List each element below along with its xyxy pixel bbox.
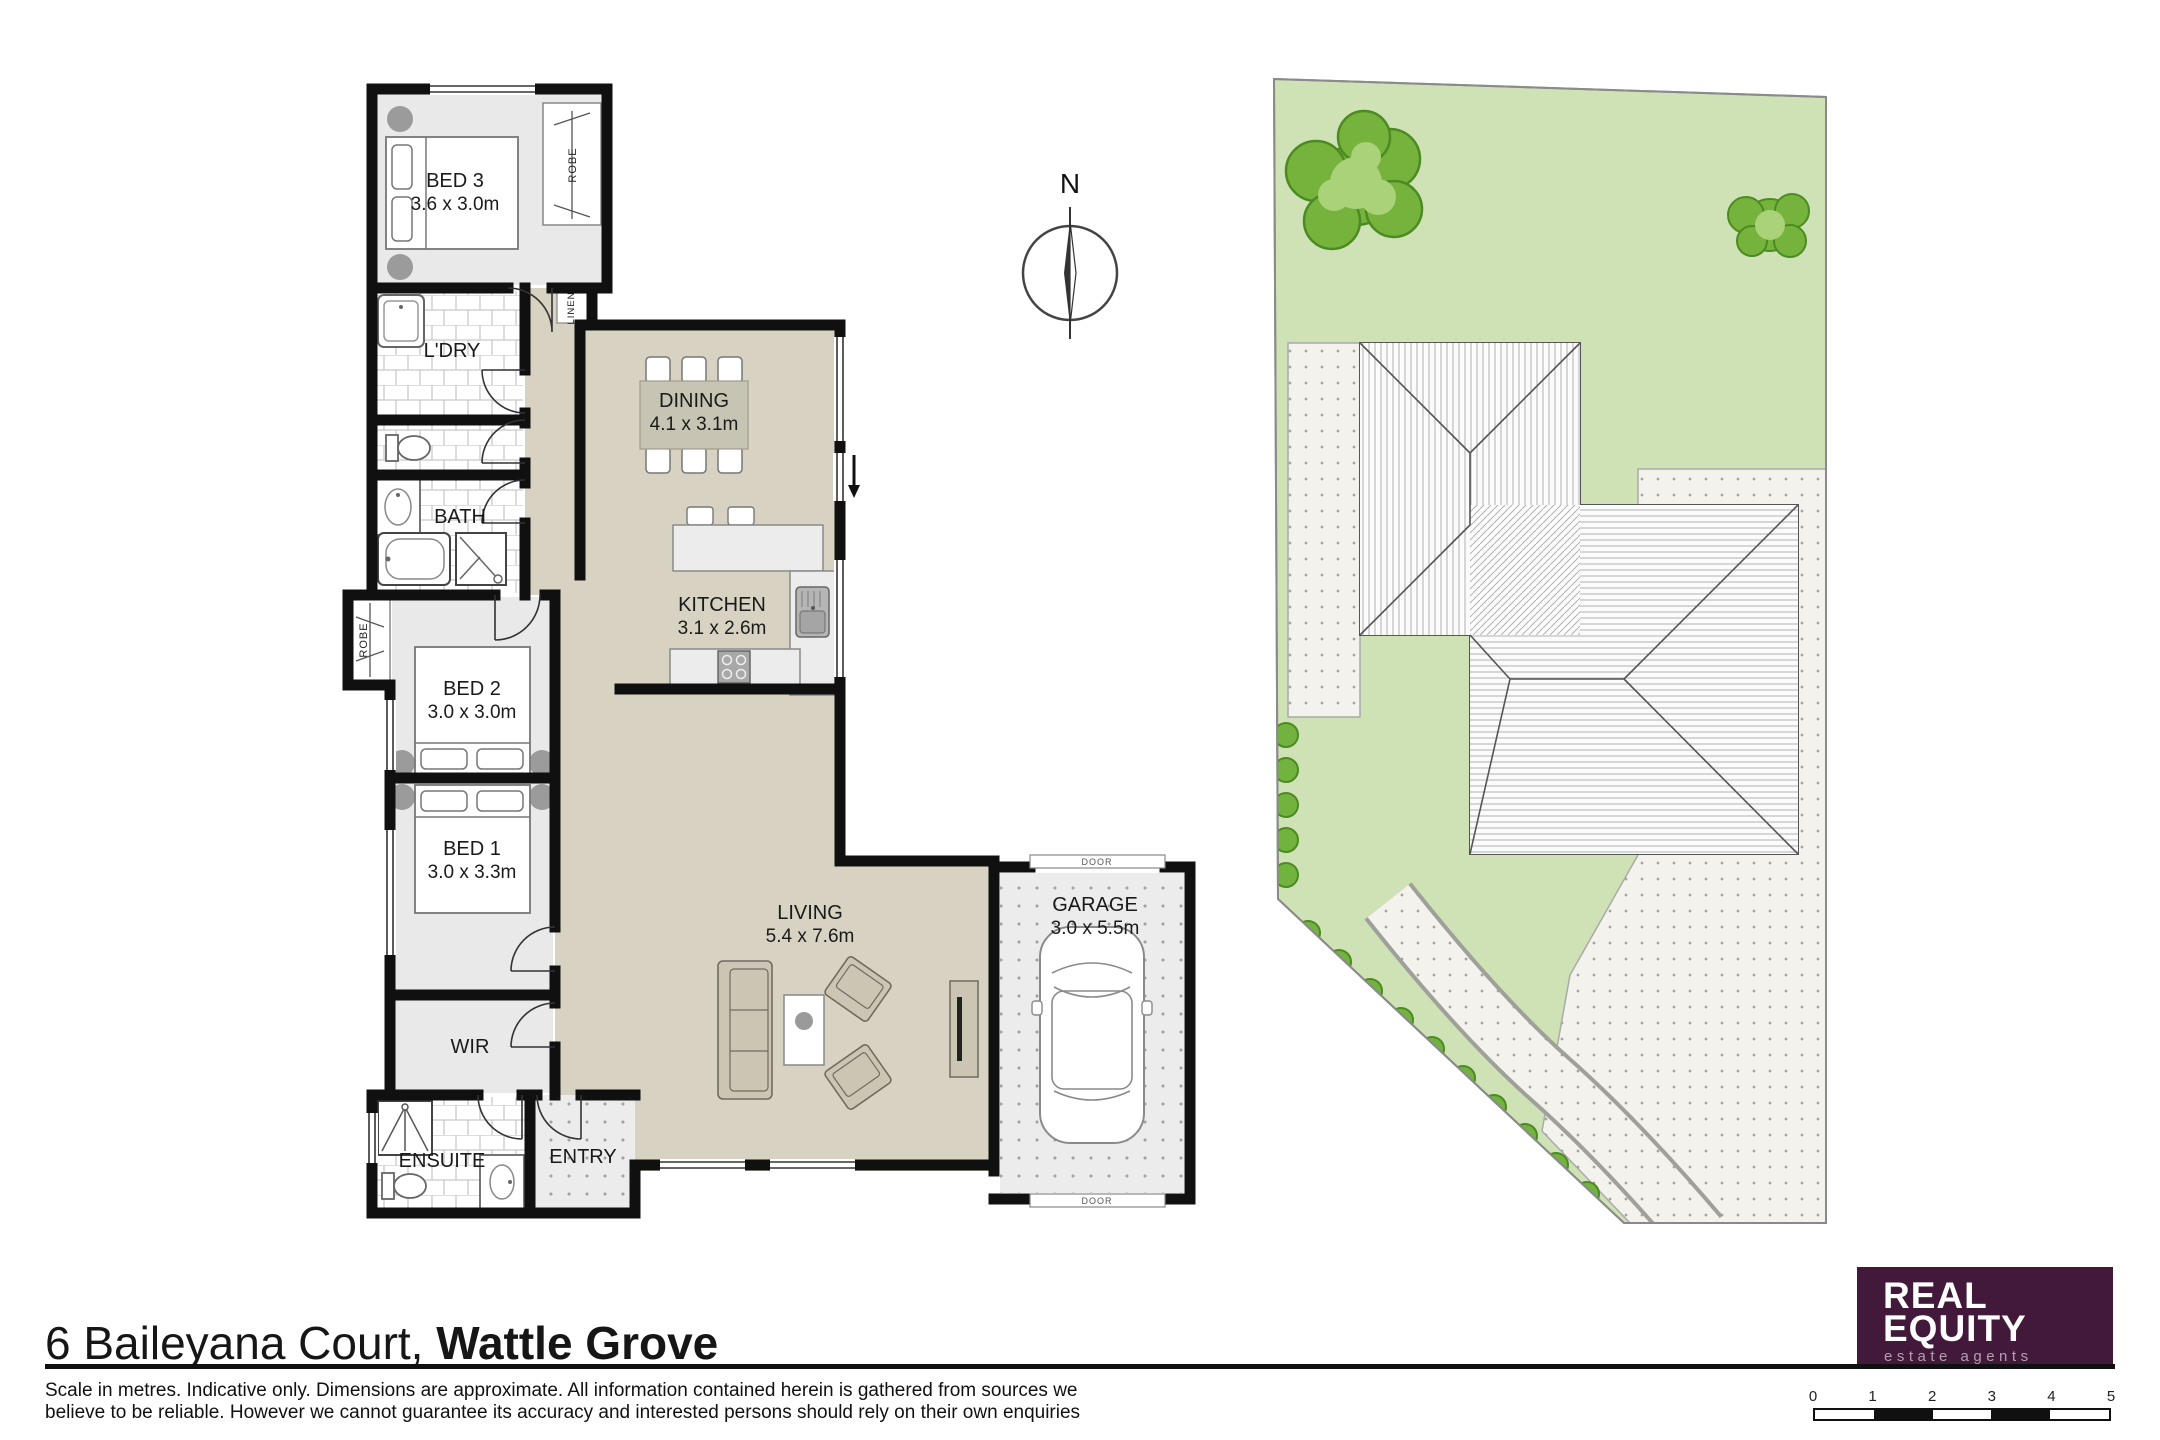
living-label: LIVING	[777, 902, 843, 924]
robe-bed2-label: ROBE	[358, 622, 370, 657]
logo-line2: EQUITY	[1883, 1312, 2113, 1345]
cooktop-icon	[718, 651, 750, 683]
kitchen-dims: 3.1 x 2.6m	[678, 618, 767, 639]
garage-door-bottom-label: DOOR	[1082, 1196, 1113, 1206]
bed2-label: BED 2	[443, 678, 501, 700]
garage-label: GARAGE	[1052, 894, 1138, 916]
robe-bed2: ROBE	[350, 597, 390, 683]
ldry-label: L'DRY	[424, 340, 481, 362]
divider-rule	[45, 1364, 2115, 1369]
bath-label: BATH	[434, 506, 486, 528]
bed3-label: BED 3	[426, 170, 484, 192]
scale-tick: 0	[1809, 1388, 1817, 1405]
bathtub-icon	[378, 533, 450, 585]
dining-dims: 4.1 x 3.1m	[650, 414, 739, 435]
garage-door-top: DOOR	[1030, 855, 1165, 868]
bath-vanity-icon	[376, 479, 420, 535]
laundry-tub-icon	[378, 295, 424, 347]
site-plan	[1270, 75, 1850, 1255]
ensuite-shower-icon	[378, 1101, 432, 1155]
kitchen-label: KITCHEN	[678, 594, 766, 616]
scale-tick: 5	[2107, 1388, 2115, 1405]
garage-dims: 3.0 x 5.5m	[1051, 918, 1140, 939]
tv-unit-icon	[950, 981, 978, 1077]
scale-tick: 4	[2047, 1388, 2055, 1405]
car-icon	[1032, 927, 1152, 1143]
living-dims: 5.4 x 7.6m	[766, 926, 855, 947]
garage-door-bottom: DOOR	[1030, 1194, 1165, 1207]
tree-icon	[1728, 194, 1809, 257]
coffee-table-icon	[784, 995, 824, 1065]
property-address: 6 Baileyana Court, Wattle Grove	[45, 1316, 718, 1370]
wir-label: WIR	[451, 1036, 490, 1058]
robe-bed3-label: ROBE	[567, 147, 579, 182]
site-path-left	[1288, 343, 1360, 717]
disclaimer-line2: believe to be reliable. However we canno…	[45, 1402, 1080, 1424]
toilet-icon	[386, 435, 430, 461]
north-compass: N	[1010, 165, 1130, 355]
compass-n-label: N	[1060, 168, 1080, 199]
logo-tagline: estate agents	[1884, 1348, 2113, 1365]
shower-icon	[456, 533, 506, 585]
address-suburb: Wattle Grove	[423, 1317, 718, 1369]
agency-logo: REAL EQUITY estate agents	[1857, 1267, 2113, 1364]
bed3-dims: 3.6 x 3.0m	[411, 194, 500, 215]
robe-bed3: ROBE	[543, 103, 601, 225]
scale-bar: 0 1 2 3 4 5	[1813, 1388, 2111, 1421]
bed1-label: BED 1	[443, 838, 501, 860]
sliding-door	[833, 453, 860, 501]
scale-bar-segments	[1813, 1408, 2111, 1421]
kitchen-sink-icon	[796, 587, 829, 637]
ensuite-vanity-icon	[480, 1155, 524, 1209]
bed2-dims: 3.0 x 3.0m	[428, 702, 517, 723]
entry-label: ENTRY	[549, 1146, 616, 1168]
scale-tick: 2	[1928, 1388, 1936, 1405]
disclaimer: Scale in metres. Indicative only. Dimens…	[45, 1380, 1080, 1424]
bed1-dims: 3.0 x 3.3m	[428, 862, 517, 883]
scale-tick: 1	[1868, 1388, 1876, 1405]
ensuite-toilet-icon	[382, 1173, 426, 1199]
garage-door-top-label: DOOR	[1082, 857, 1113, 867]
scale-bar-ticks: 0 1 2 3 4 5	[1813, 1388, 2111, 1406]
disclaimer-line1: Scale in metres. Indicative only. Dimens…	[45, 1380, 1080, 1402]
ensuite-label: ENSUITE	[399, 1150, 486, 1172]
dining-label: DINING	[659, 390, 729, 412]
scale-tick: 3	[1988, 1388, 1996, 1405]
sofa-icon	[718, 961, 772, 1099]
address-street: 6 Baileyana Court,	[45, 1317, 423, 1369]
